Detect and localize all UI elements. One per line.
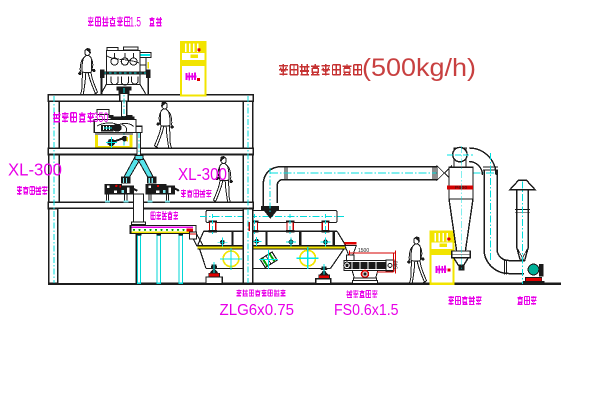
svg-text:ZLG6x0.75: ZLG6x0.75 xyxy=(220,302,295,319)
svg-text:540: 540 xyxy=(394,260,400,269)
svg-text:350: 350 xyxy=(94,109,109,125)
svg-text:FS0.6x1.5: FS0.6x1.5 xyxy=(334,302,399,319)
svg-text:(500kg/h): (500kg/h) xyxy=(362,54,476,82)
svg-text:XL-300: XL-300 xyxy=(178,164,227,184)
svg-text:XL-300: XL-300 xyxy=(8,160,62,180)
svg-text:1500: 1500 xyxy=(358,248,369,254)
svg-text:P600: P600 xyxy=(455,185,467,190)
svg-text:1.5: 1.5 xyxy=(130,15,142,30)
